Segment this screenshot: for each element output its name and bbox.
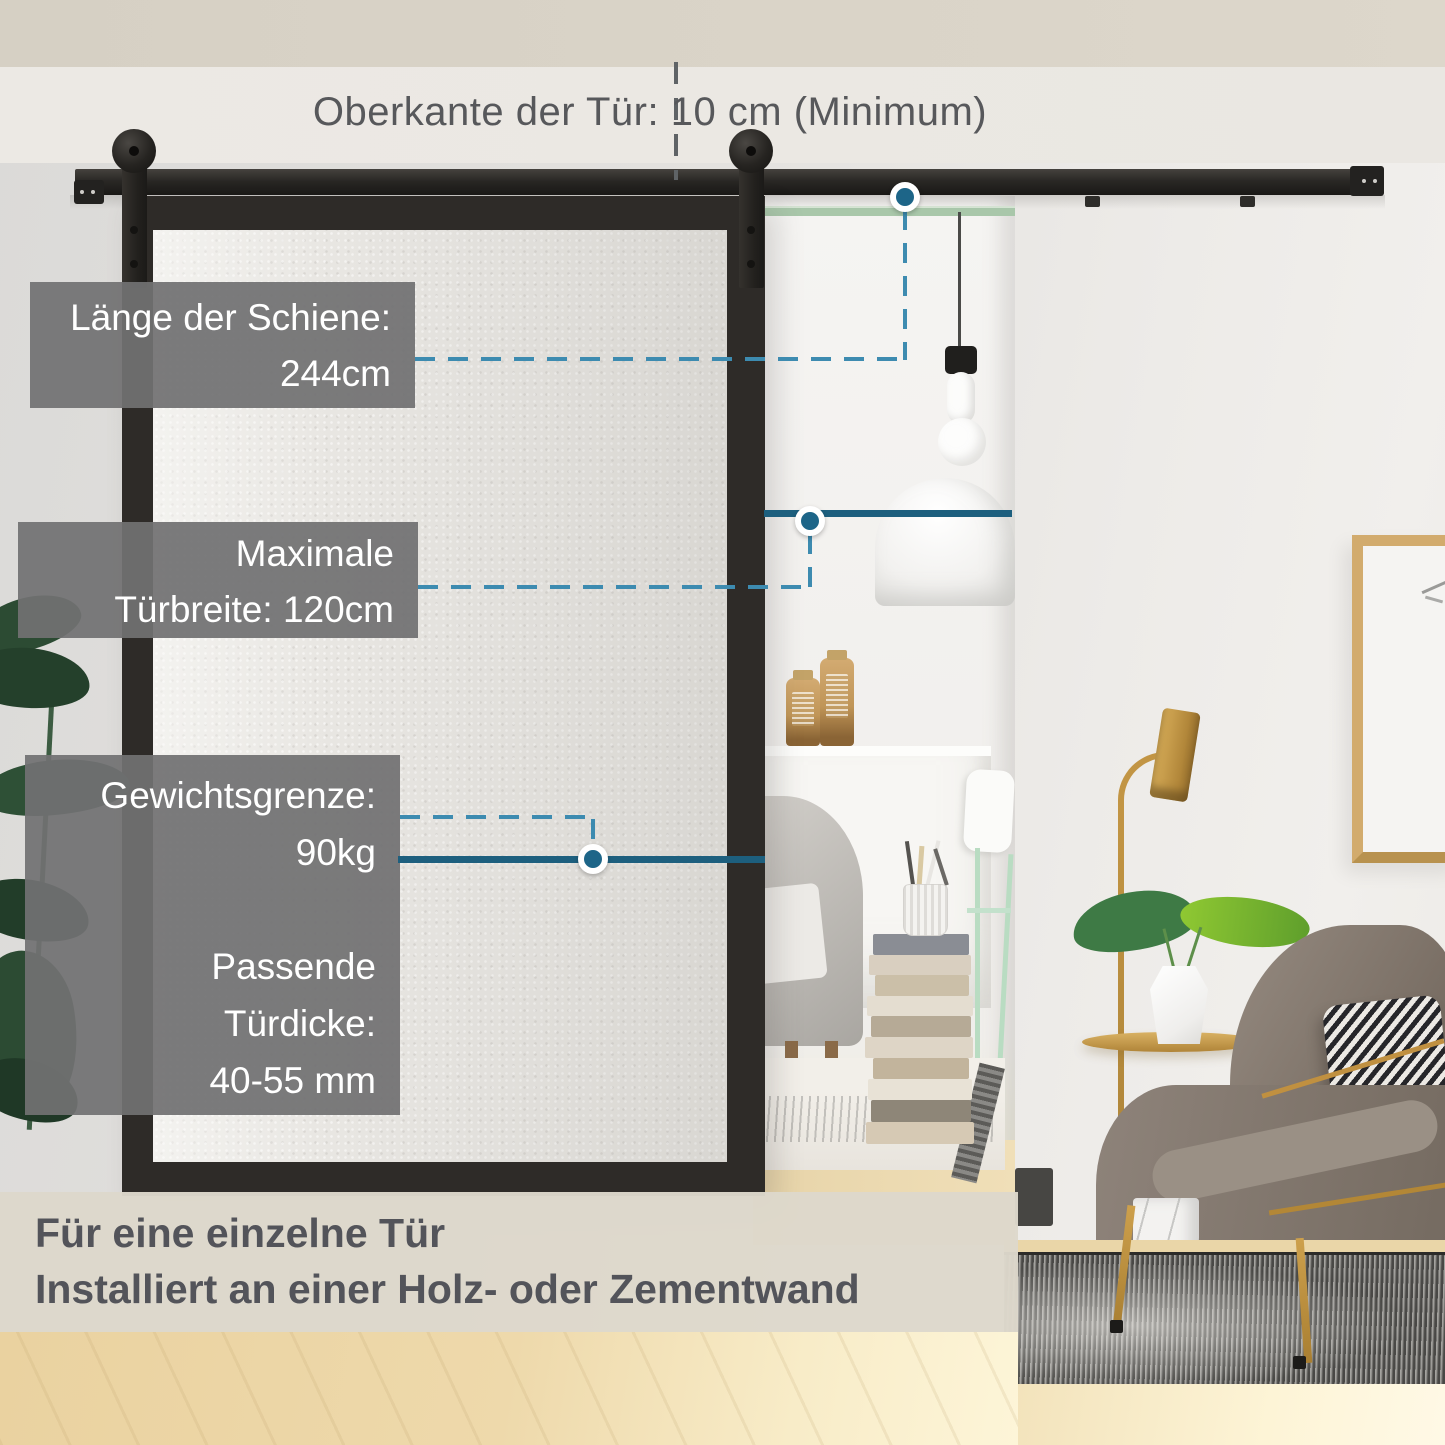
book-stack: [865, 934, 977, 1146]
hanger-wheel-right: [729, 129, 773, 173]
book: [865, 1037, 973, 1058]
thickness-line2: Türdicke:: [35, 995, 376, 1052]
door-width-line2: Türbreite: 120cm: [28, 582, 394, 638]
wheel-hub: [129, 146, 139, 156]
armchair-leg-cap: [1110, 1320, 1123, 1333]
strap-bolt: [130, 226, 138, 234]
pendant-dome-shade: [875, 478, 1015, 606]
ceiling: [0, 0, 1445, 67]
book: [868, 1079, 972, 1100]
bottle-label: [826, 674, 848, 718]
frame-sketch: [1422, 581, 1445, 594]
rail-length-line1: Länge der Schiene:: [40, 290, 391, 346]
rail-end-stop-right: [1350, 166, 1384, 196]
dark-rug: [1004, 1252, 1445, 1384]
mint-chair-crossbar: [967, 908, 1011, 913]
book: [866, 1122, 974, 1144]
bottle-label: [792, 692, 814, 726]
pendant-cord: [958, 212, 961, 348]
footer-line2: Installiert an einer Holz- oder Zementwa…: [35, 1266, 860, 1313]
door-width-line1: Maximale: [28, 526, 394, 582]
pendant-bulb: [947, 372, 975, 424]
strap-bolt: [747, 226, 755, 234]
rail-length-dashed-line: [415, 357, 905, 361]
sideboard-top-highlight: [753, 746, 991, 756]
door-width-dashed-line: [418, 585, 810, 589]
hanger-wheel-left: [112, 129, 156, 173]
rail-length-line2: 244cm: [40, 346, 391, 402]
top-measure-note: Oberkante der Tür: 10 cm (Minimum): [170, 90, 1130, 135]
doorway-opening: [753, 196, 1015, 1245]
wheel-hub: [746, 146, 756, 156]
glass-shelf-edge: [753, 208, 1015, 216]
rail-length-label-box: Länge der Schiene: 244cm: [30, 282, 415, 408]
stop-bolt: [1362, 179, 1366, 183]
rail-length-callout-dot: [890, 182, 920, 212]
mint-chair-backrest: [963, 769, 1015, 853]
weight-line2: 90kg: [35, 824, 376, 881]
bottle-cap: [793, 670, 813, 680]
pendant-ball: [938, 418, 986, 466]
strap-bolt: [130, 260, 138, 268]
book: [871, 1016, 971, 1037]
rail-length-dashed-line: [903, 210, 907, 360]
sliding-rail: [75, 169, 1382, 195]
picture-frame: [1352, 535, 1445, 863]
stop-bolt: [1373, 179, 1377, 183]
amber-bottle: [786, 678, 820, 746]
rail-spacer: [1085, 196, 1100, 207]
bottle-cap: [827, 650, 847, 660]
book: [871, 1100, 971, 1122]
stop-bolt: [80, 190, 84, 194]
wood-floor-left: [0, 1332, 1018, 1445]
door-width-dashed-line: [808, 534, 812, 588]
door-floor-guide: [1015, 1168, 1053, 1226]
book: [875, 975, 969, 996]
rail-end-stop-left: [74, 180, 104, 204]
door-width-callout-dot: [795, 506, 825, 536]
pendant-socket: [945, 346, 977, 374]
thickness-line3: 40-55 mm: [35, 1052, 376, 1109]
label-spacer: [35, 881, 376, 938]
book: [873, 1058, 969, 1079]
weight-callout-dot: [578, 844, 608, 874]
weight-line1: Gewichtsgrenze:: [35, 767, 376, 824]
weight-thickness-label-box: Gewichtsgrenze: 90kg Passende Türdicke: …: [25, 755, 400, 1115]
product-annotation-image: Oberkante der Tür: 10 cm (Minimum) Länge…: [0, 0, 1445, 1445]
footer-line1: Für eine einzelne Tür: [35, 1210, 445, 1257]
amber-bottle: [820, 658, 854, 746]
thickness-line1: Passende: [35, 938, 376, 995]
strap-bolt: [747, 260, 755, 268]
pen-cup: [903, 884, 948, 936]
wood-floor-right: [1004, 1384, 1445, 1445]
book: [873, 934, 969, 955]
armchair-leg-cap: [1293, 1356, 1306, 1369]
white-vase: [1150, 966, 1208, 1044]
rail-spacer: [1240, 196, 1255, 207]
frame-sketch: [1425, 596, 1443, 604]
stop-bolt: [91, 190, 95, 194]
door-width-label-box: Maximale Türbreite: 120cm: [18, 522, 418, 638]
book: [869, 955, 971, 975]
book: [867, 996, 973, 1016]
weight-dashed-line: [400, 815, 594, 819]
